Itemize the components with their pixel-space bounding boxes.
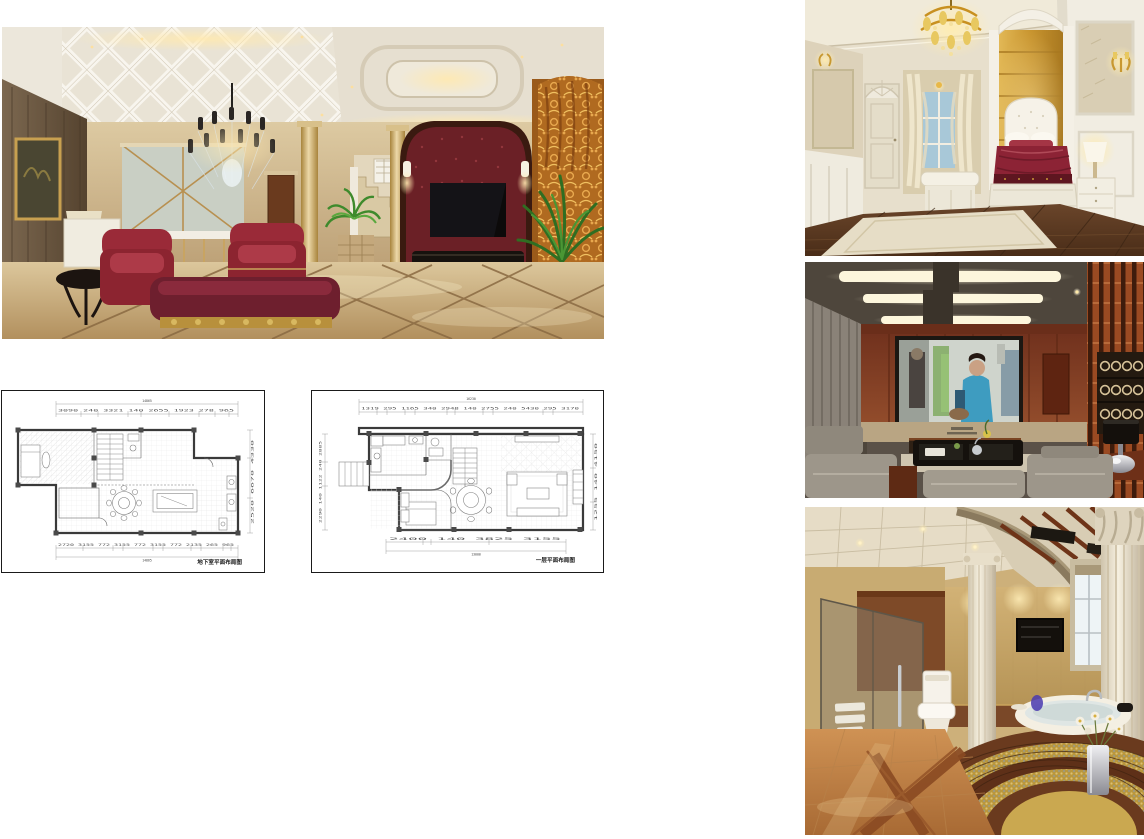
foot-bench — [921, 172, 979, 212]
arched-door — [865, 80, 899, 188]
basement-plan-caption: 地下室平面布局图 — [197, 558, 242, 566]
gold-sconce-right — [1105, 46, 1137, 78]
media-room-rendering[interactable] — [805, 262, 1144, 498]
center-column — [963, 553, 1001, 767]
table-lamp — [1083, 142, 1107, 162]
svg-text:14865: 14865 — [142, 399, 152, 403]
svg-text:2720 3155 772 3155 772 31: 2720 3155 772 3155 772 3155 772 2135 265… — [58, 543, 234, 547]
back-door — [1043, 354, 1069, 414]
svg-text:14865: 14865 — [142, 559, 152, 563]
gold-sconce-left — [814, 49, 836, 71]
wall-tv — [1017, 619, 1063, 651]
gold-chandelier — [911, 0, 991, 58]
bathroom-rendering[interactable] — [805, 507, 1144, 835]
basement-floor-plan[interactable]: 14865 3090 240 3321 140 2655 1923 278 96… — [1, 390, 265, 573]
svg-text:13000: 13000 — [471, 553, 481, 557]
first-floor-plan-caption: 一层平面布局图 — [536, 556, 576, 564]
living-room-rendering[interactable] — [2, 27, 604, 339]
svg-text:1255 140 4150: 1255 140 4150 — [594, 443, 598, 521]
ceiling-beam — [933, 262, 959, 292]
svg-text:2400 140 3825 3155: 2400 140 3825 3155 — [389, 537, 562, 541]
design-portfolio-page: 14865 3090 240 3321 140 2655 1923 278 96… — [0, 0, 1144, 839]
corinthian-capital — [1095, 507, 1144, 545]
blue-bottle — [1031, 695, 1043, 711]
svg-text:2290 140 1122 240 2885: 2290 140 1122 240 2885 — [319, 441, 323, 523]
svg-text:2520 6670 4330: 2520 6670 4330 — [251, 440, 255, 524]
projection-screen — [895, 336, 1023, 426]
chaise-longue — [150, 277, 340, 328]
plan-stairs — [97, 434, 123, 480]
shower-door-handle — [898, 665, 901, 727]
svg-text:3090 240 3321 140 2655 19: 3090 240 3321 140 2655 1923 278 965 — [58, 409, 234, 413]
svg-text:16230: 16230 — [466, 397, 476, 401]
first-floor-plan[interactable]: 16230 1319 295 1165 340 2948 140 2755 24… — [311, 390, 604, 573]
bedroom-rendering[interactable] — [805, 0, 1144, 256]
svg-text:1319 295 1165 340 2948 140 275: 1319 295 1165 340 2948 140 2755 240 5430… — [361, 407, 579, 411]
